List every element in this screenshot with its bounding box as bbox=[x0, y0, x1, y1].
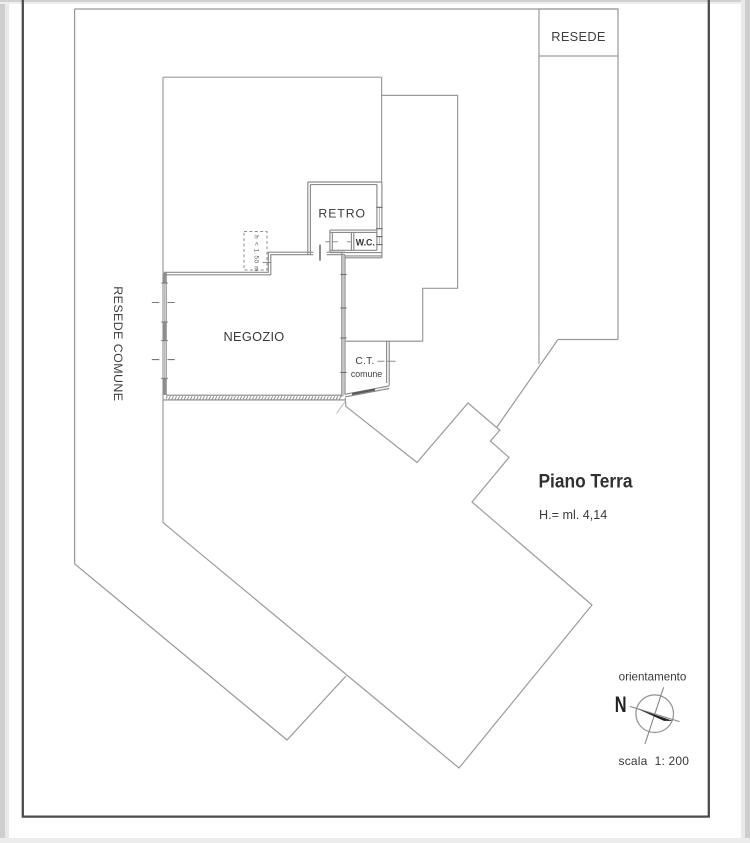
svg-text:N: N bbox=[615, 692, 627, 717]
svg-text:RESEDE COMUNE: RESEDE COMUNE bbox=[111, 286, 125, 401]
svg-text:Piano Terra: Piano Terra bbox=[539, 472, 633, 493]
svg-text:W.C.: W.C. bbox=[356, 237, 375, 247]
svg-text:scala 1: 200: scala 1: 200 bbox=[619, 754, 690, 768]
svg-text:comune: comune bbox=[351, 369, 382, 379]
svg-text:C.T.: C.T. bbox=[355, 356, 374, 367]
svg-text:NEGOZIO: NEGOZIO bbox=[223, 329, 284, 344]
svg-text:h < 1.50 m: h < 1.50 m bbox=[253, 235, 260, 272]
svg-text:RETRO: RETRO bbox=[318, 207, 366, 221]
svg-text:RESEDE: RESEDE bbox=[551, 29, 605, 44]
svg-text:H.= ml. 4,14: H.= ml. 4,14 bbox=[539, 508, 607, 522]
svg-text:orientamento: orientamento bbox=[619, 671, 687, 684]
